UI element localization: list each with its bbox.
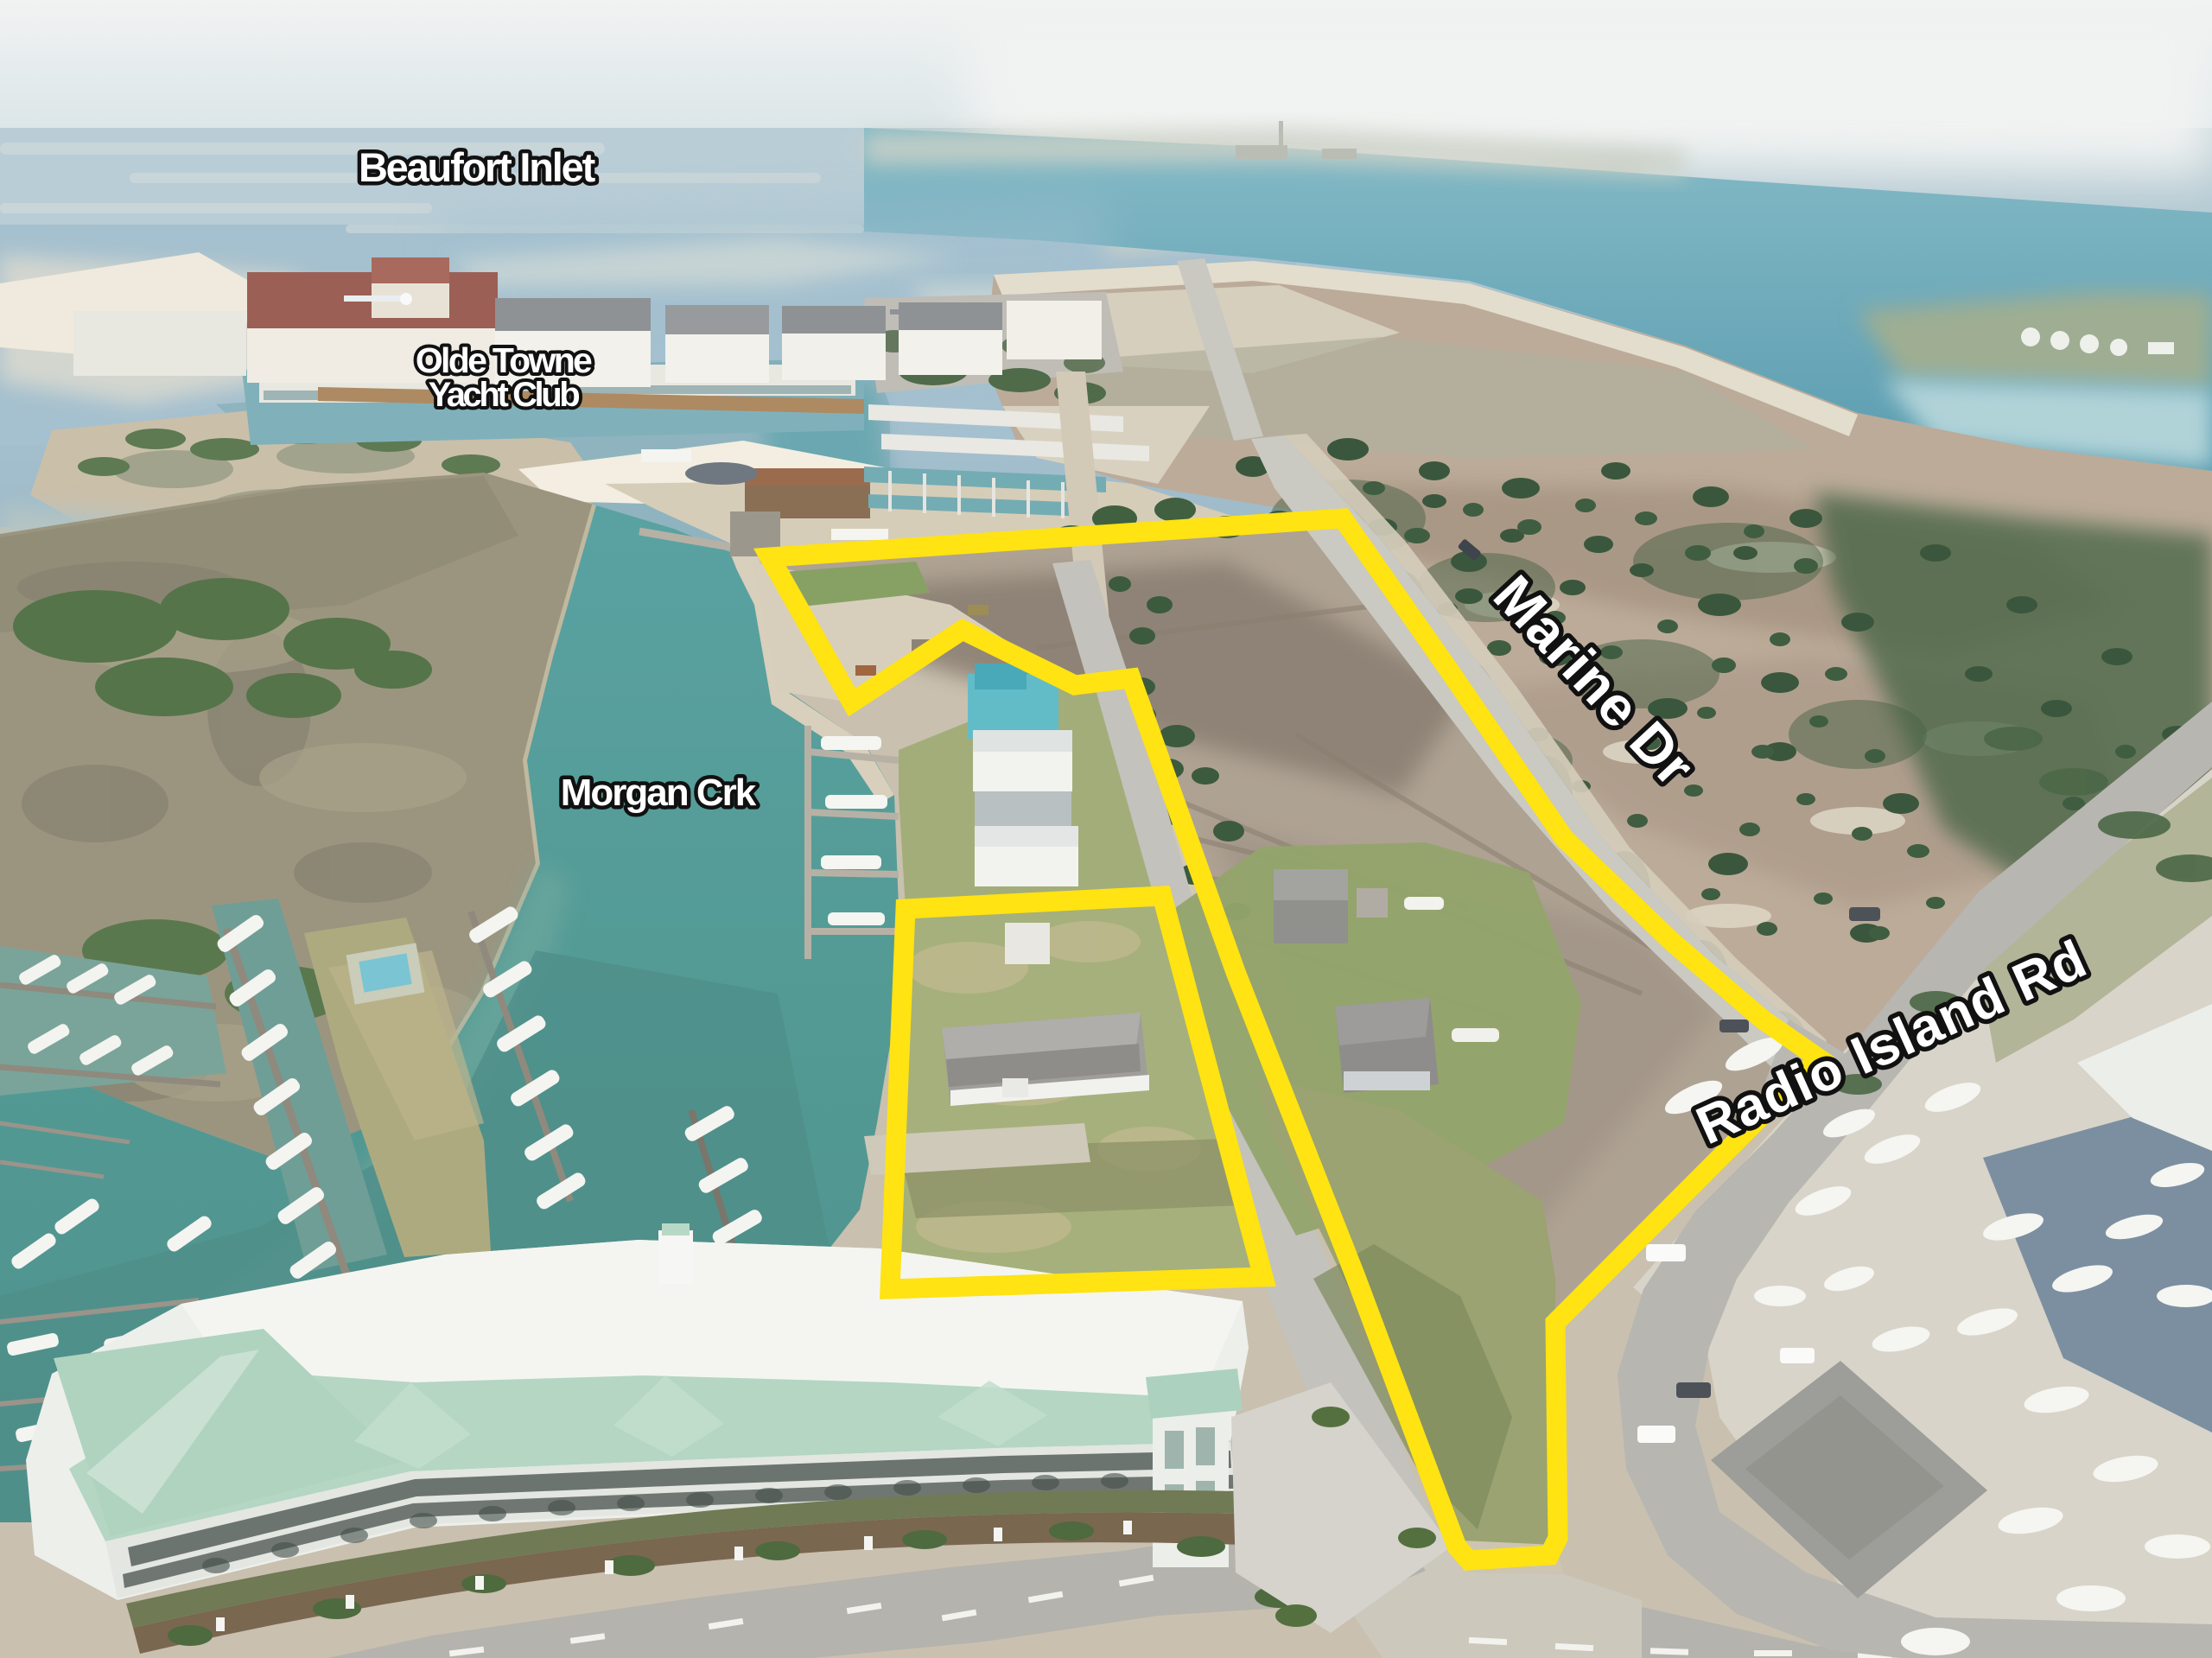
svg-text:Beaufort Inlet: Beaufort Inlet	[359, 144, 596, 190]
svg-text:Olde Towne: Olde Towne	[416, 340, 592, 380]
svg-text:Yacht Club: Yacht Club	[429, 376, 580, 414]
svg-text:Morgan Crk: Morgan Crk	[561, 772, 757, 814]
